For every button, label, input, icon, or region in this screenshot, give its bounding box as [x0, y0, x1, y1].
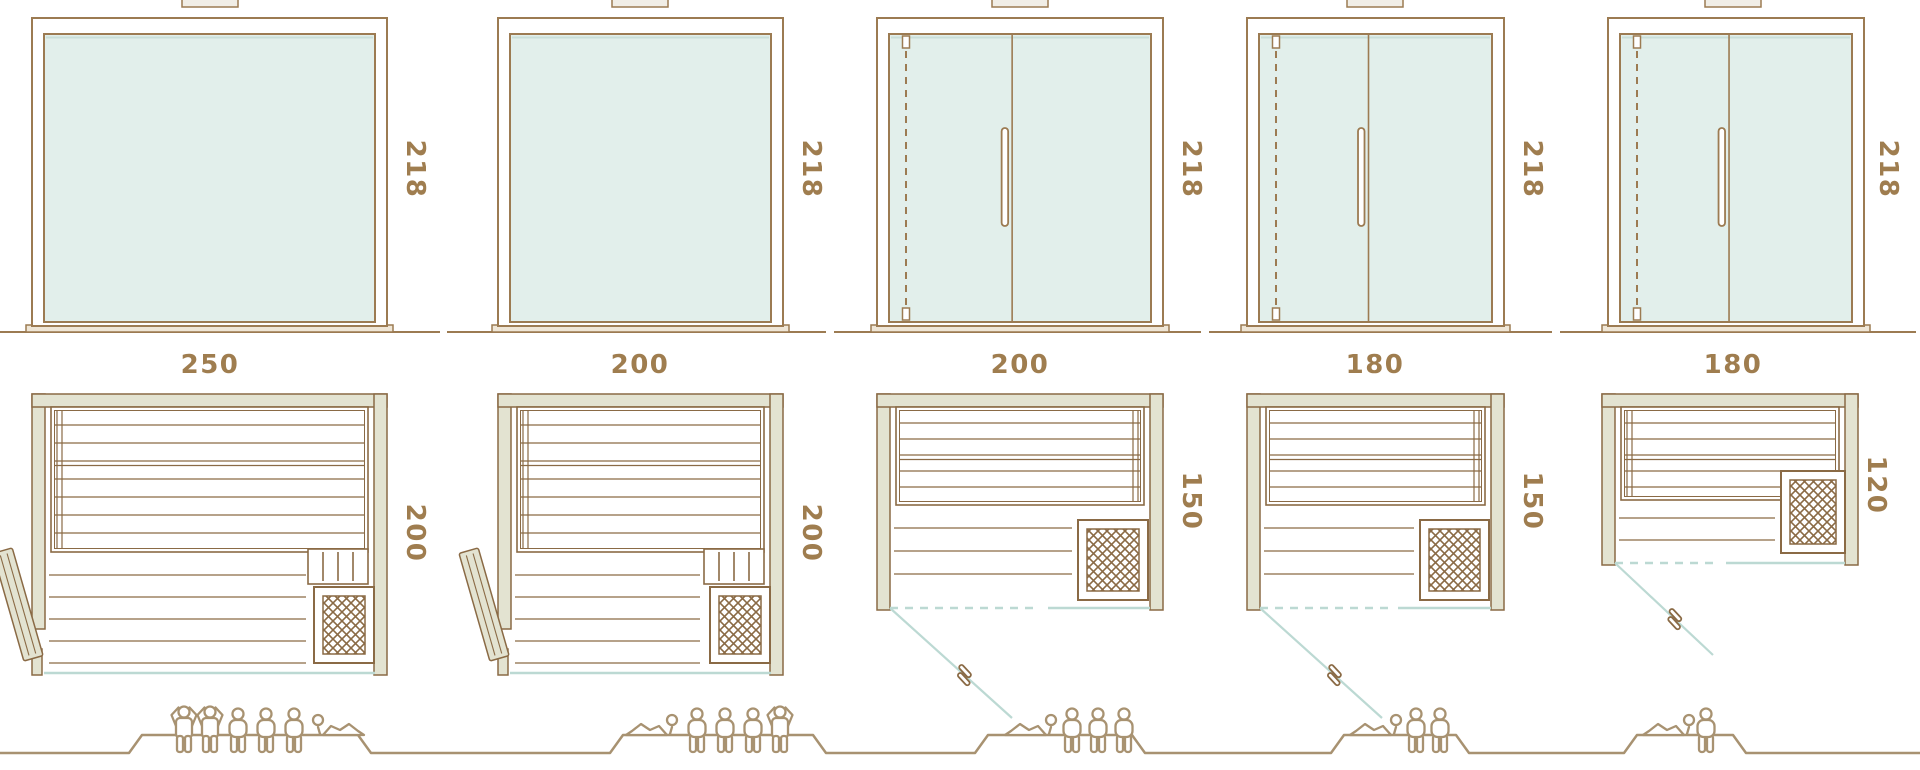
person-seated-icon [258, 709, 275, 753]
width-dimension-label: 200 [975, 352, 1065, 378]
height-dimension-label: 218 [402, 124, 428, 214]
capacity-figures-group-1 [172, 707, 365, 753]
heater-icon [1078, 520, 1148, 600]
lineup-drawing [0, 0, 1920, 770]
height-dimension-label: 218 [1875, 124, 1901, 214]
person-lying-icon [1005, 715, 1056, 735]
person-seated-icon [717, 709, 734, 753]
person-seated-icon [230, 709, 247, 753]
floor-plan-3 [877, 394, 1163, 718]
capacity-figures-group-3 [1005, 709, 1133, 753]
person-seated-icon [1064, 709, 1081, 753]
person-lying-icon [313, 715, 364, 735]
floor-plan-4 [1247, 394, 1504, 718]
heater-icon [314, 587, 374, 663]
width-dimension-label: 250 [165, 352, 255, 378]
depth-dimension-label: 200 [798, 488, 824, 578]
person-seated-icon [1090, 709, 1107, 753]
width-dimension-label: 200 [595, 352, 685, 378]
width-dimension-label: 180 [1688, 352, 1778, 378]
depth-dimension-label: 150 [1178, 456, 1204, 546]
person-seated-icon [286, 709, 303, 753]
depth-dimension-label: 150 [1519, 456, 1545, 546]
person-standing-icon [768, 707, 793, 753]
front-elevation-1 [0, 0, 440, 332]
heater-icon [1781, 471, 1845, 553]
person-seated-icon [1432, 709, 1449, 753]
heater-icon [710, 587, 770, 663]
width-dimension-label: 180 [1330, 352, 1420, 378]
height-dimension-label: 218 [798, 124, 824, 214]
capacity-figures-group-4 [1350, 709, 1449, 753]
capacity-figures-group-2 [626, 707, 793, 753]
floor-plan-5 [1602, 394, 1858, 655]
door-swing-line [1260, 608, 1382, 718]
person-standing-icon [172, 707, 197, 753]
person-lying-icon [1643, 715, 1694, 735]
floor-plan-2 [459, 394, 783, 675]
depth-dimension-label: 200 [402, 488, 428, 578]
person-lying-icon [1350, 715, 1401, 735]
person-seated-icon [1408, 709, 1425, 753]
sauna-lineup-diagram: 2182502002182002002182001502181801502181… [0, 0, 1920, 770]
door-swing-line [1615, 563, 1713, 655]
capacity-figures-group-5 [1643, 709, 1715, 753]
height-dimension-label: 218 [1178, 124, 1204, 214]
front-elevation-door-5 [1560, 0, 1916, 332]
heater-icon [1420, 520, 1489, 600]
front-elevation-door-3 [834, 0, 1201, 332]
front-elevation-door-4 [1209, 0, 1552, 332]
person-lying-icon [626, 715, 677, 735]
door-swing-line [890, 608, 1012, 718]
person-standing-icon [198, 707, 223, 753]
depth-dimension-label: 120 [1863, 440, 1889, 530]
person-seated-icon [745, 709, 762, 753]
front-elevation-2 [447, 0, 826, 332]
person-seated-icon [689, 709, 706, 753]
floor-plan-1 [0, 394, 387, 675]
height-dimension-label: 218 [1519, 124, 1545, 214]
person-seated-icon [1698, 709, 1715, 753]
person-seated-icon [1116, 709, 1133, 753]
